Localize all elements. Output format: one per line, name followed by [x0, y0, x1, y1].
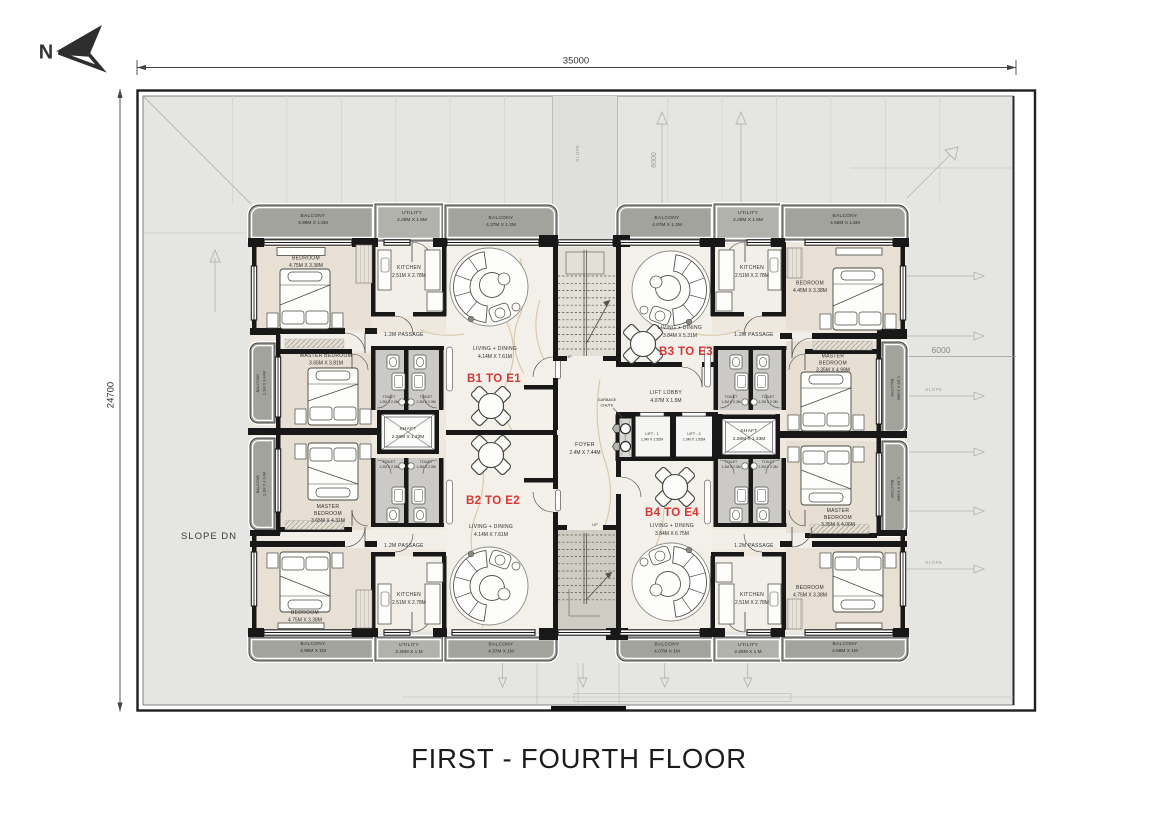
svg-text:24700: 24700	[106, 382, 117, 408]
svg-text:BALCONY: BALCONY	[832, 213, 858, 219]
svg-text:B1 TO E1: B1 TO E1	[467, 373, 521, 385]
svg-text:LIVING + DINING: LIVING + DINING	[473, 346, 517, 352]
svg-text:1.2M X 2.3M: 1.2M X 2.3M	[416, 400, 435, 404]
svg-text:BEDROOM: BEDROOM	[291, 610, 319, 616]
svg-text:1.1M X 4.14M: 1.1M X 4.14M	[262, 472, 267, 496]
svg-text:BALCONY: BALCONY	[832, 641, 858, 647]
svg-text:KITCHEN: KITCHEN	[740, 265, 764, 271]
svg-text:1.2M PASSAGE: 1.2M PASSAGE	[734, 332, 774, 338]
svg-text:35000: 35000	[563, 56, 589, 67]
svg-text:6000: 6000	[932, 345, 951, 355]
svg-text:1.2M X 2.3M: 1.2M X 2.3M	[758, 465, 777, 469]
svg-text:FIRST - FOURTH FLOOR: FIRST - FOURTH FLOOR	[411, 743, 747, 774]
svg-text:BALCONY: BALCONY	[488, 215, 514, 221]
svg-text:SLOPE: SLOPE	[925, 387, 942, 392]
svg-text:BALCONY: BALCONY	[300, 213, 326, 219]
svg-text:SHAFT: SHAFT	[740, 428, 757, 434]
svg-text:B2 TO E2: B2 TO E2	[466, 495, 520, 507]
svg-text:B3 TO E3: B3 TO E3	[659, 346, 713, 358]
svg-text:LIFT - 1: LIFT - 1	[645, 432, 658, 436]
svg-text:TOILET: TOILET	[383, 395, 396, 399]
svg-text:2.28M X 1.33M: 2.28M X 1.33M	[733, 436, 766, 442]
svg-text:UTILITY: UTILITY	[738, 210, 758, 216]
svg-text:LIVING + DINING: LIVING + DINING	[650, 523, 694, 529]
svg-text:CHUTE: CHUTE	[600, 404, 614, 408]
svg-text:1.2M X 2.3M: 1.2M X 2.3M	[758, 400, 777, 404]
svg-text:1.2M X 2.3M: 1.2M X 2.3M	[416, 465, 435, 469]
svg-text:BEDROOM: BEDROOM	[824, 515, 852, 521]
svg-text:4.98M X 1.5M: 4.98M X 1.5M	[298, 220, 328, 226]
svg-text:1.2M X 2.3M: 1.2M X 2.3M	[379, 465, 398, 469]
svg-text:4.98M X 1M: 4.98M X 1M	[300, 648, 326, 654]
svg-text:MASTER: MASTER	[822, 354, 845, 360]
svg-text:1.9M X 1.55M: 1.9M X 1.55M	[683, 438, 705, 442]
svg-text:4.37M X 1M: 4.37M X 1M	[488, 649, 514, 655]
svg-text:1.1M X 3.98M: 1.1M X 3.98M	[897, 376, 902, 400]
svg-text:SLOPE DN: SLOPE DN	[181, 531, 237, 542]
svg-text:MASTER BEDROOM: MASTER BEDROOM	[300, 353, 352, 359]
svg-text:4.07M X 1.5M: 4.07M X 1.5M	[650, 398, 681, 404]
svg-text:1.2M PASSAGE: 1.2M PASSAGE	[384, 543, 424, 549]
svg-text:TOILET: TOILET	[762, 460, 775, 464]
svg-text:1.2M X 2.3M: 1.2M X 2.3M	[379, 400, 398, 404]
svg-text:2.28M X 1.5M: 2.28M X 1.5M	[733, 217, 763, 223]
svg-text:UP: UP	[592, 522, 598, 527]
svg-text:BEDROOM: BEDROOM	[796, 585, 824, 591]
svg-text:B4 TO E4: B4 TO E4	[645, 507, 699, 519]
svg-text:1.2M PASSAGE: 1.2M PASSAGE	[734, 543, 774, 549]
svg-text:1.2M PASSAGE: 1.2M PASSAGE	[384, 332, 424, 338]
svg-text:3.84M X 6.75M: 3.84M X 6.75M	[655, 531, 689, 537]
svg-text:1.2M X 2.3M: 1.2M X 2.3M	[721, 400, 740, 404]
svg-text:BEDROOM: BEDROOM	[292, 256, 320, 262]
svg-text:4.45M X 3.38M: 4.45M X 3.38M	[793, 288, 827, 294]
svg-text:1.1M X 3.44M: 1.1M X 3.44M	[262, 371, 267, 395]
svg-text:BEDROOM: BEDROOM	[796, 281, 824, 287]
svg-text:GARBAGE: GARBAGE	[598, 398, 617, 402]
svg-text:4.58M X 1.5M: 4.58M X 1.5M	[830, 220, 860, 226]
svg-text:BEDROOM: BEDROOM	[314, 511, 342, 517]
svg-text:2.51M X 2.78M: 2.51M X 2.78M	[392, 600, 426, 606]
svg-text:2.51M X 2.78M: 2.51M X 2.78M	[392, 273, 426, 279]
svg-text:BALCONY: BALCONY	[654, 215, 680, 221]
svg-text:4.14M X 7.61M: 4.14M X 7.61M	[478, 354, 512, 360]
svg-text:BALCONY: BALCONY	[255, 373, 260, 392]
svg-text:TOILET: TOILET	[420, 460, 433, 464]
svg-text:3.65M X 3.81M: 3.65M X 3.81M	[309, 361, 343, 367]
svg-text:TOILET: TOILET	[420, 395, 433, 399]
svg-text:TOILET: TOILET	[762, 395, 775, 399]
svg-text:KITCHEN: KITCHEN	[740, 592, 764, 598]
svg-text:BALCONY: BALCONY	[890, 379, 895, 398]
svg-text:3.84M X 5.31M: 3.84M X 5.31M	[663, 333, 697, 339]
svg-text:MASTER: MASTER	[317, 504, 340, 510]
svg-text:BALCONY: BALCONY	[300, 641, 326, 647]
svg-text:4.37M X 1.2M: 4.37M X 1.2M	[486, 222, 516, 228]
svg-text:4.14M X 7.61M: 4.14M X 7.61M	[474, 532, 508, 538]
svg-text:2.4M X 7.44M: 2.4M X 7.44M	[569, 450, 600, 456]
svg-text:1.9M X 1.55M: 1.9M X 1.55M	[641, 438, 663, 442]
svg-text:4.75M X 3.38M: 4.75M X 3.38M	[289, 263, 323, 269]
svg-text:KITCHEN: KITCHEN	[397, 592, 421, 598]
svg-text:BEDROOM: BEDROOM	[819, 361, 847, 367]
svg-text:LIVING + DINING: LIVING + DINING	[658, 325, 702, 331]
svg-text:4.07M X 1.2M: 4.07M X 1.2M	[652, 222, 682, 228]
svg-text:FOYER: FOYER	[575, 442, 595, 448]
svg-text:2.28M X 1 M: 2.28M X 1 M	[734, 649, 761, 655]
svg-text:6000: 6000	[651, 152, 658, 168]
svg-text:KITCHEN: KITCHEN	[397, 265, 421, 271]
svg-text:1.2M X 2.3M: 1.2M X 2.3M	[721, 465, 740, 469]
svg-text:TOILET: TOILET	[725, 460, 738, 464]
svg-text:3.35M X 4.99M: 3.35M X 4.99M	[816, 368, 850, 374]
svg-text:LIFT - 2: LIFT - 2	[687, 432, 700, 436]
svg-text:LIFT LOBBY: LIFT LOBBY	[650, 390, 683, 396]
svg-text:BALCONY: BALCONY	[255, 474, 260, 493]
svg-text:4.75M X 3.38M: 4.75M X 3.38M	[288, 618, 322, 624]
svg-text:UTILITY: UTILITY	[402, 210, 422, 216]
svg-text:4.68M X 1M: 4.68M X 1M	[832, 648, 858, 654]
svg-text:2.28M X 1 M: 2.28M X 1 M	[395, 649, 422, 655]
svg-text:4.75M X 3.38M: 4.75M X 3.38M	[793, 593, 827, 599]
svg-text:BALCONY: BALCONY	[488, 642, 514, 648]
svg-text:2.51M X 2.78M: 2.51M X 2.78M	[735, 600, 769, 606]
svg-text:BALCONY: BALCONY	[890, 480, 895, 499]
svg-text:LIVING + DINING: LIVING + DINING	[469, 524, 513, 530]
svg-text:2.28M X 1.33M: 2.28M X 1.33M	[392, 434, 425, 440]
svg-text:3.65M X 4.31M: 3.65M X 4.31M	[311, 518, 345, 524]
svg-text:UTILITY: UTILITY	[399, 642, 419, 648]
svg-text:4.07M X 1M: 4.07M X 1M	[654, 649, 680, 655]
svg-text:2.51M X 2.78M: 2.51M X 2.78M	[735, 273, 769, 279]
svg-text:3.35M X 4.06M: 3.35M X 4.06M	[821, 522, 855, 528]
svg-text:TOILET: TOILET	[383, 460, 396, 464]
svg-text:SLOPE: SLOPE	[925, 560, 942, 565]
svg-text:SLOPE: SLOPE	[575, 144, 580, 161]
svg-text:SHAFT: SHAFT	[399, 426, 416, 432]
svg-text:2.28M X 1.5M: 2.28M X 1.5M	[397, 217, 427, 223]
svg-text:BALCONY: BALCONY	[654, 642, 680, 648]
svg-text:MASTER: MASTER	[827, 508, 850, 514]
svg-text:TOILET: TOILET	[725, 395, 738, 399]
svg-text:N: N	[39, 42, 53, 64]
svg-text:UP: UP	[566, 354, 572, 359]
svg-text:1.1M X 3.98M: 1.1M X 3.98M	[897, 477, 902, 501]
svg-text:UTILITY: UTILITY	[738, 642, 758, 648]
